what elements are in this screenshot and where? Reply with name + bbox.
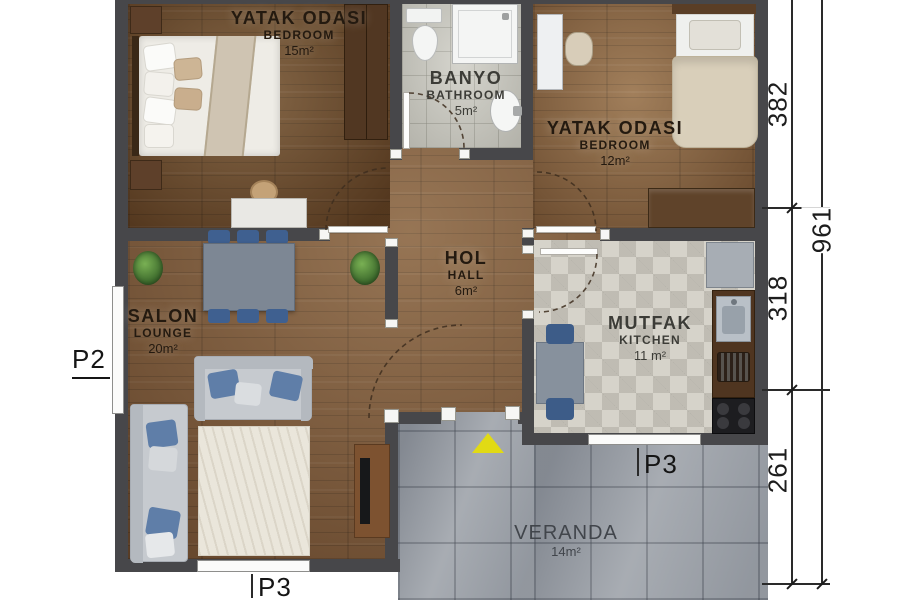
room-label-bathroom: BANYO BATHROOM 5m² <box>426 68 505 118</box>
marker-p3-kitchen-tick <box>637 448 639 476</box>
room-label-bedroom2: YATAK ODASI BEDROOM 12m² <box>547 118 683 168</box>
room-title: BANYO <box>426 68 505 88</box>
room-subtitle: BEDROOM <box>231 29 367 42</box>
room-area: 14m² <box>514 545 618 560</box>
dim-961: 961 <box>802 207 843 253</box>
room-subtitle: HALL <box>445 269 488 282</box>
room-title: MUTFAK <box>608 313 692 333</box>
room-title: SALON <box>128 306 199 326</box>
arc-bedroom2-door <box>537 172 596 231</box>
arc-kitchen-door <box>539 254 597 312</box>
dim-line-outer <box>821 0 823 585</box>
marker-p3-lounge: P3 <box>258 572 292 600</box>
dim-318: 318 <box>763 275 794 321</box>
arc-entrance-door <box>369 325 462 418</box>
marker-p3-kitchen: P3 <box>644 449 678 480</box>
room-area: 5m² <box>426 104 505 119</box>
dim-382: 382 <box>763 81 794 127</box>
room-label-lounge: SALON LOUNGE 20m² <box>128 306 199 356</box>
room-area: 12m² <box>547 154 683 169</box>
room-area: 20m² <box>128 342 199 357</box>
marker-p2: P2 <box>72 344 110 379</box>
room-label-hall: HOL HALL 6m² <box>445 248 488 298</box>
room-subtitle: LOUNGE <box>128 327 199 340</box>
room-title: HOL <box>445 248 488 268</box>
room-subtitle: BATHROOM <box>426 89 505 102</box>
arc-bedroom1-door <box>326 168 388 230</box>
room-area: 11 m² <box>608 349 692 364</box>
room-label-bedroom1: YATAK ODASI BEDROOM 15m² <box>231 8 367 58</box>
room-title: YATAK ODASI <box>231 8 367 28</box>
room-subtitle: KITCHEN <box>608 334 692 347</box>
dim-261: 261 <box>763 447 794 493</box>
marker-p3-lounge-tick <box>251 574 253 598</box>
floor-plan: YATAK ODASI BEDROOM 15m² BANYO BATHROOM … <box>0 0 900 600</box>
room-area: 15m² <box>231 44 367 59</box>
room-title: YATAK ODASI <box>547 118 683 138</box>
room-area: 6m² <box>445 284 488 299</box>
room-label-veranda: VERANDA 14m² <box>514 522 618 560</box>
dim-connector <box>762 389 830 391</box>
entrance-arrow <box>472 433 504 453</box>
room-title: VERANDA <box>514 522 618 544</box>
room-subtitle: BEDROOM <box>547 139 683 152</box>
room-label-kitchen: MUTFAK KITCHEN 11 m² <box>608 313 692 363</box>
